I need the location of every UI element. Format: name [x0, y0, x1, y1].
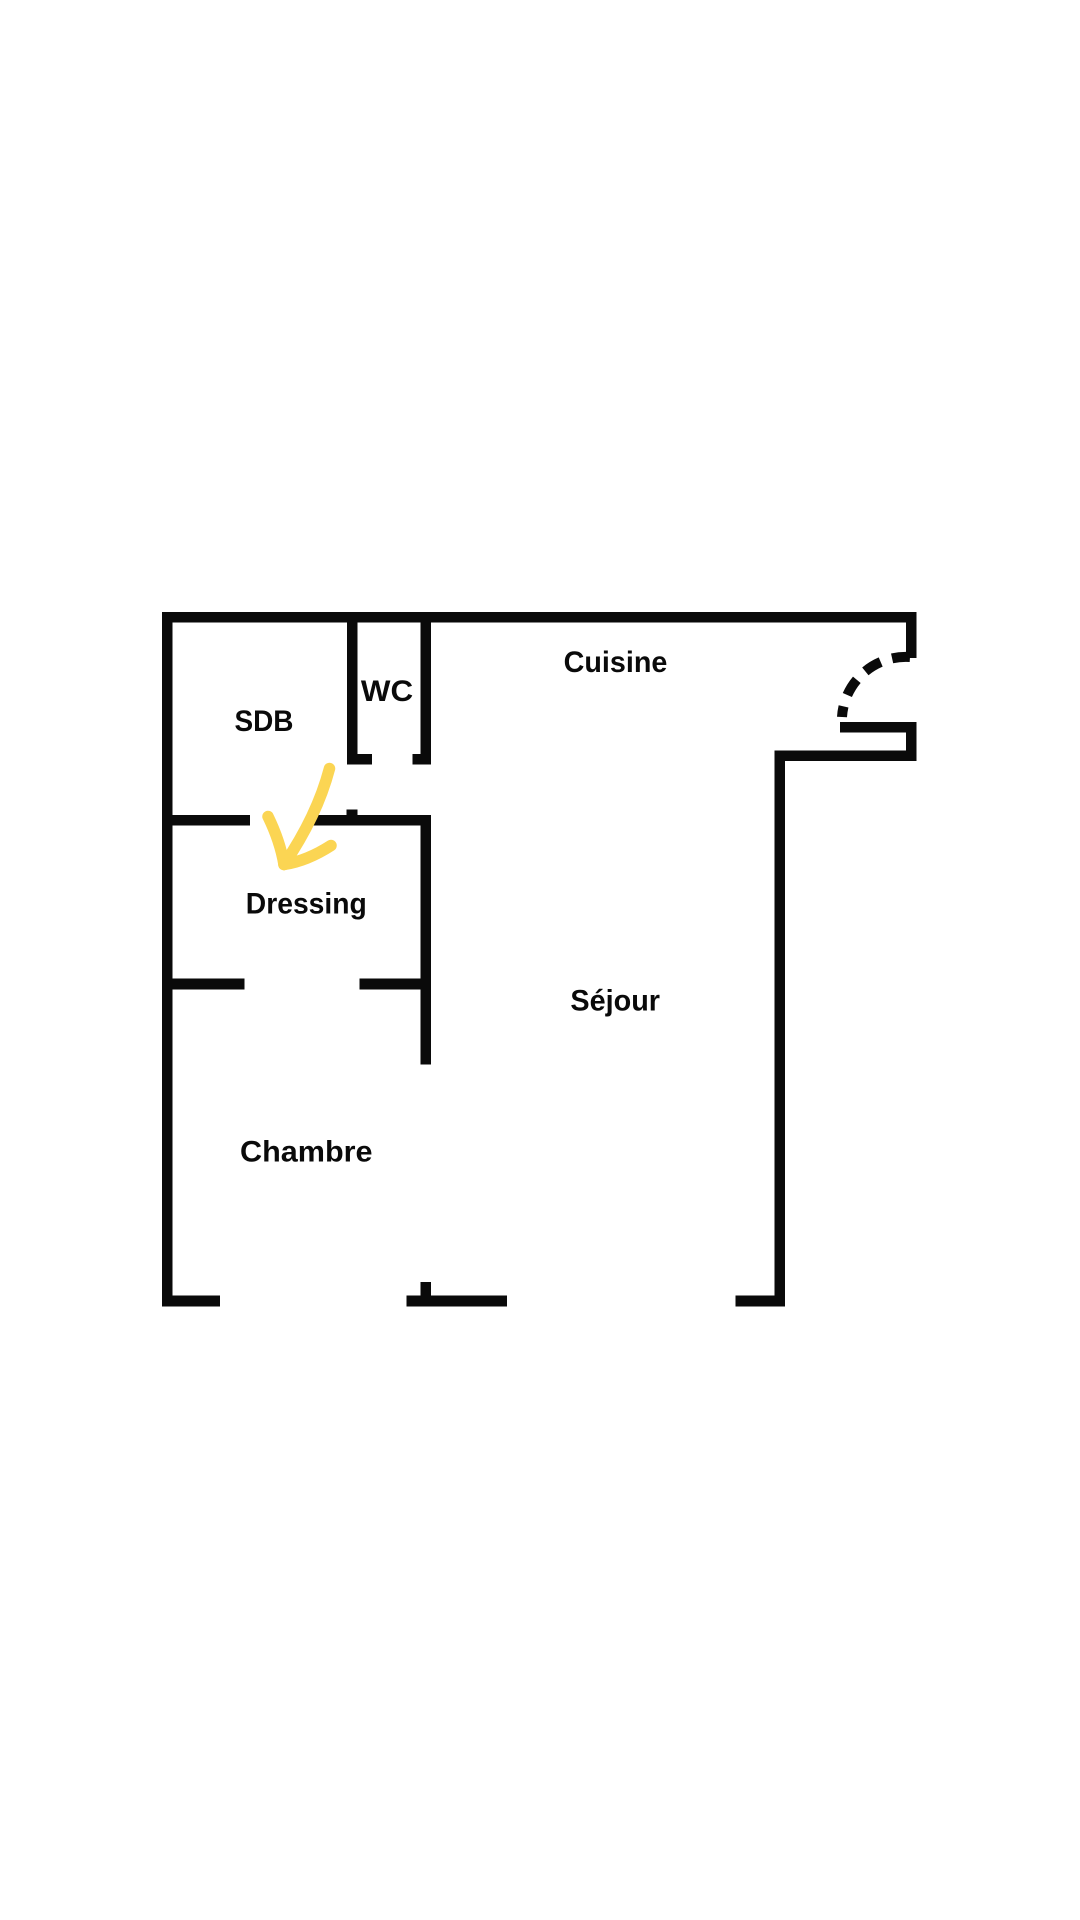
svg-text:SDB: SDB [235, 705, 294, 738]
svg-text:Chambre: Chambre [240, 1136, 373, 1169]
svg-text:Séjour: Séjour [570, 985, 660, 1018]
svg-text:Cuisine: Cuisine [564, 646, 668, 679]
svg-text:WC: WC [361, 675, 413, 708]
svg-text:Dressing: Dressing [246, 888, 367, 921]
